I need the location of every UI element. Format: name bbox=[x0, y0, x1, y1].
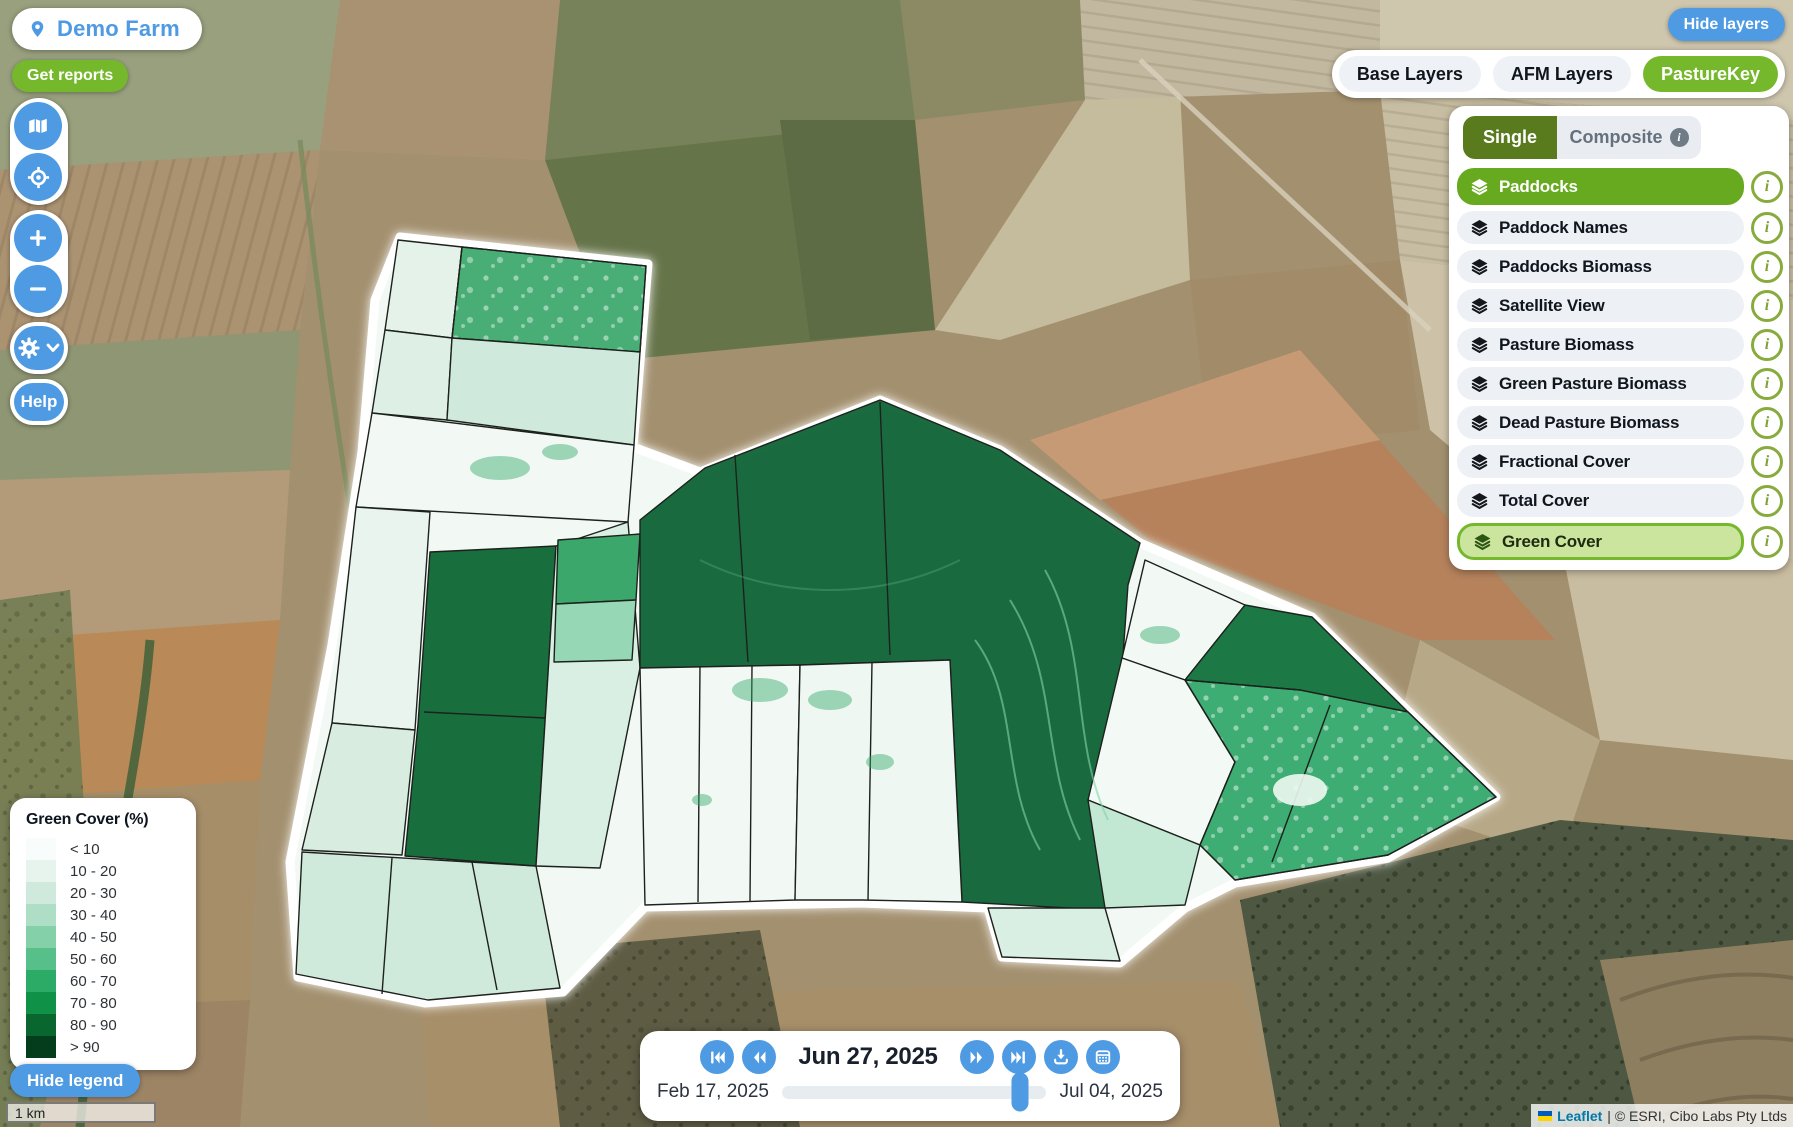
skip-start-icon bbox=[709, 1049, 726, 1066]
legend-row: 10 - 20 bbox=[26, 860, 186, 882]
minus-icon bbox=[28, 279, 48, 299]
range-start-date: Feb 17, 2025 bbox=[657, 1081, 769, 1103]
skip-to-end-button[interactable] bbox=[1002, 1040, 1036, 1074]
farm-selector-button[interactable]: Demo Farm bbox=[12, 8, 202, 50]
legend-row: 30 - 40 bbox=[26, 904, 186, 926]
layer-row-total-cover: Total Cover bbox=[1457, 484, 1783, 517]
skip-end-icon bbox=[1010, 1049, 1027, 1066]
locate-icon bbox=[27, 166, 50, 189]
legend-label: 30 - 40 bbox=[70, 907, 117, 924]
legend-swatch bbox=[26, 948, 56, 970]
composite-info-icon[interactable] bbox=[1670, 128, 1689, 147]
layers-panel: Single Composite Paddocks Paddock Names … bbox=[1449, 106, 1789, 570]
layer-pasture-biomass[interactable]: Pasture Biomass bbox=[1457, 328, 1744, 361]
range-end-date: Jul 04, 2025 bbox=[1059, 1081, 1163, 1103]
layer-row-green-pasture-biomass: Green Pasture Biomass bbox=[1457, 367, 1783, 400]
legend-label: > 90 bbox=[70, 1039, 100, 1056]
layer-row-pasture-biomass: Pasture Biomass bbox=[1457, 328, 1783, 361]
layers-icon bbox=[1470, 335, 1489, 354]
download-icon bbox=[1052, 1048, 1070, 1066]
map-controls: Help bbox=[10, 98, 68, 425]
layer-label: Paddock Names bbox=[1499, 218, 1628, 238]
info-pasture-biomass[interactable] bbox=[1751, 329, 1783, 361]
zoom-in-button[interactable] bbox=[14, 214, 62, 262]
layer-label: Satellite View bbox=[1499, 296, 1605, 316]
mode-composite-label: Composite bbox=[1569, 127, 1662, 148]
tab-base-layers[interactable]: Base Layers bbox=[1339, 56, 1481, 92]
help-button[interactable]: Help bbox=[14, 383, 64, 421]
info-fractional-cover[interactable] bbox=[1751, 446, 1783, 478]
legend-row: 70 - 80 bbox=[26, 992, 186, 1014]
legend-label: 70 - 80 bbox=[70, 995, 117, 1012]
layer-label: Paddocks bbox=[1499, 177, 1578, 197]
legend-row: 20 - 30 bbox=[26, 882, 186, 904]
info-paddock-names[interactable] bbox=[1751, 212, 1783, 244]
layer-total-cover[interactable]: Total Cover bbox=[1457, 484, 1744, 517]
chevron-down-icon bbox=[46, 343, 60, 353]
attribution-text: | © ESRI, Cibo Labs Pty Ltds bbox=[1607, 1108, 1787, 1124]
scale-bar-label: 1 km bbox=[15, 1105, 45, 1121]
farm-name: Demo Farm bbox=[57, 16, 180, 42]
map-controls-group-3 bbox=[10, 322, 68, 374]
layer-label: Total Cover bbox=[1499, 491, 1589, 511]
legend-label: 50 - 60 bbox=[70, 951, 117, 968]
locate-me-button[interactable] bbox=[14, 153, 62, 201]
layer-satellite-view[interactable]: Satellite View bbox=[1457, 289, 1744, 322]
legend-swatch bbox=[26, 970, 56, 992]
rewind-icon bbox=[751, 1049, 768, 1066]
legend-row: < 10 bbox=[26, 838, 186, 860]
date-slider-track[interactable] bbox=[782, 1086, 1046, 1099]
map-stage: Demo Farm Get reports bbox=[0, 0, 1793, 1127]
legend-label: 10 - 20 bbox=[70, 863, 117, 880]
zoom-out-button[interactable] bbox=[14, 265, 62, 313]
legend-swatch bbox=[26, 838, 56, 860]
mode-composite-tab[interactable]: Composite bbox=[1557, 116, 1701, 159]
layer-row-paddocks: Paddocks bbox=[1457, 168, 1783, 205]
legend-label: 60 - 70 bbox=[70, 973, 117, 990]
tab-pasturekey[interactable]: PastureKey bbox=[1643, 56, 1778, 92]
calendar-icon bbox=[1094, 1048, 1112, 1066]
layer-label: Green Pasture Biomass bbox=[1499, 374, 1687, 394]
layer-label: Paddocks Biomass bbox=[1499, 257, 1652, 277]
legend-row: 80 - 90 bbox=[26, 1014, 186, 1036]
layer-green-cover[interactable]: Green Cover bbox=[1457, 523, 1744, 560]
legend-row: 50 - 60 bbox=[26, 948, 186, 970]
info-paddocks-biomass[interactable] bbox=[1751, 251, 1783, 283]
legend-swatch bbox=[26, 904, 56, 926]
layers-icon bbox=[1470, 257, 1489, 276]
layer-tabs: Base Layers AFM Layers PastureKey bbox=[1332, 50, 1785, 98]
legend-row: 60 - 70 bbox=[26, 970, 186, 992]
layers-icon bbox=[1470, 218, 1489, 237]
mode-single-tab[interactable]: Single bbox=[1463, 116, 1557, 159]
layers-icon bbox=[1470, 177, 1489, 196]
layer-row-paddock-names: Paddock Names bbox=[1457, 211, 1783, 244]
legend-panel: Green Cover (%) < 10 10 - 20 20 - 30 30 … bbox=[10, 798, 196, 1070]
layer-row-fractional-cover: Fractional Cover bbox=[1457, 445, 1783, 478]
mode-toggle: Single Composite bbox=[1463, 116, 1701, 159]
gear-icon bbox=[18, 337, 40, 359]
legend-label: 80 - 90 bbox=[70, 1017, 117, 1034]
info-green-pasture-biomass[interactable] bbox=[1751, 368, 1783, 400]
settings-button[interactable] bbox=[14, 326, 64, 370]
date-slider-thumb[interactable] bbox=[1012, 1073, 1029, 1112]
layer-paddocks[interactable]: Paddocks bbox=[1457, 168, 1744, 205]
timeline-controls: Jun 27, 2025 bbox=[640, 1040, 1180, 1074]
skip-to-start-button[interactable] bbox=[700, 1040, 734, 1074]
layer-label: Dead Pasture Biomass bbox=[1499, 413, 1679, 433]
legend-label: < 10 bbox=[70, 841, 100, 858]
legend-swatch bbox=[26, 1036, 56, 1058]
info-paddocks[interactable] bbox=[1751, 171, 1783, 203]
layer-fractional-cover[interactable]: Fractional Cover bbox=[1457, 445, 1744, 478]
timeline-panel: Jun 27, 2025 bbox=[640, 1031, 1180, 1121]
location-pin-icon bbox=[28, 17, 47, 41]
step-forward-button[interactable] bbox=[960, 1040, 994, 1074]
leaflet-link[interactable]: Leaflet bbox=[1557, 1108, 1602, 1124]
map-attribution: Leaflet | © ESRI, Cibo Labs Pty Ltds bbox=[1531, 1104, 1793, 1127]
layers-icon bbox=[1470, 413, 1489, 432]
download-button[interactable] bbox=[1044, 1040, 1078, 1074]
map-icon bbox=[27, 115, 49, 137]
layer-row-satellite-view: Satellite View bbox=[1457, 289, 1783, 322]
legend-swatch bbox=[26, 992, 56, 1014]
plus-icon bbox=[28, 228, 48, 248]
hide-layers-button[interactable]: Hide layers bbox=[1668, 8, 1785, 41]
layers-icon bbox=[1473, 532, 1492, 551]
legend-label: 20 - 30 bbox=[70, 885, 117, 902]
layer-row-green-cover: Green Cover bbox=[1457, 523, 1783, 560]
legend-swatch bbox=[26, 882, 56, 904]
map-controls-group-1 bbox=[10, 98, 68, 205]
layer-row-dead-pasture-biomass: Dead Pasture Biomass bbox=[1457, 406, 1783, 439]
layers-icon bbox=[1470, 296, 1489, 315]
legend-label: 40 - 50 bbox=[70, 929, 117, 946]
legend-row: 40 - 50 bbox=[26, 926, 186, 948]
info-dead-pasture-biomass[interactable] bbox=[1751, 407, 1783, 439]
info-green-cover[interactable] bbox=[1751, 526, 1783, 558]
layers-icon bbox=[1470, 491, 1489, 510]
layer-label: Fractional Cover bbox=[1499, 452, 1630, 472]
layer-green-pasture-biomass[interactable]: Green Pasture Biomass bbox=[1457, 367, 1744, 400]
legend-swatch bbox=[26, 926, 56, 948]
info-satellite-view[interactable] bbox=[1751, 290, 1783, 322]
layer-label: Pasture Biomass bbox=[1499, 335, 1634, 355]
layers-icon bbox=[1470, 374, 1489, 393]
scale-bar: 1 km bbox=[6, 1102, 156, 1123]
basemap-button[interactable] bbox=[14, 102, 62, 150]
layer-paddocks-biomass[interactable]: Paddocks Biomass bbox=[1457, 250, 1744, 283]
legend-swatch bbox=[26, 1014, 56, 1036]
legend-swatch bbox=[26, 860, 56, 882]
map-controls-group-2 bbox=[10, 210, 68, 317]
legend-title: Green Cover (%) bbox=[26, 811, 186, 829]
calendar-button[interactable] bbox=[1086, 1040, 1120, 1074]
step-back-button[interactable] bbox=[742, 1040, 776, 1074]
get-reports-button[interactable]: Get reports bbox=[12, 60, 128, 92]
info-total-cover[interactable] bbox=[1751, 485, 1783, 517]
hide-legend-button[interactable]: Hide legend bbox=[10, 1064, 140, 1097]
layers-icon bbox=[1470, 452, 1489, 471]
layer-paddock-names[interactable]: Paddock Names bbox=[1457, 211, 1744, 244]
layer-dead-pasture-biomass[interactable]: Dead Pasture Biomass bbox=[1457, 406, 1744, 439]
layer-label: Green Cover bbox=[1502, 532, 1602, 552]
ukraine-flag-icon bbox=[1538, 1111, 1552, 1121]
timeline-slider-row: Feb 17, 2025 Jul 04, 2025 bbox=[640, 1081, 1180, 1103]
tab-afm-layers[interactable]: AFM Layers bbox=[1493, 56, 1631, 92]
current-date: Jun 27, 2025 bbox=[798, 1043, 937, 1071]
layer-row-paddocks-biomass: Paddocks Biomass bbox=[1457, 250, 1783, 283]
fast-forward-icon bbox=[968, 1049, 985, 1066]
map-controls-group-4: Help bbox=[10, 379, 68, 425]
legend-row: > 90 bbox=[26, 1036, 186, 1058]
